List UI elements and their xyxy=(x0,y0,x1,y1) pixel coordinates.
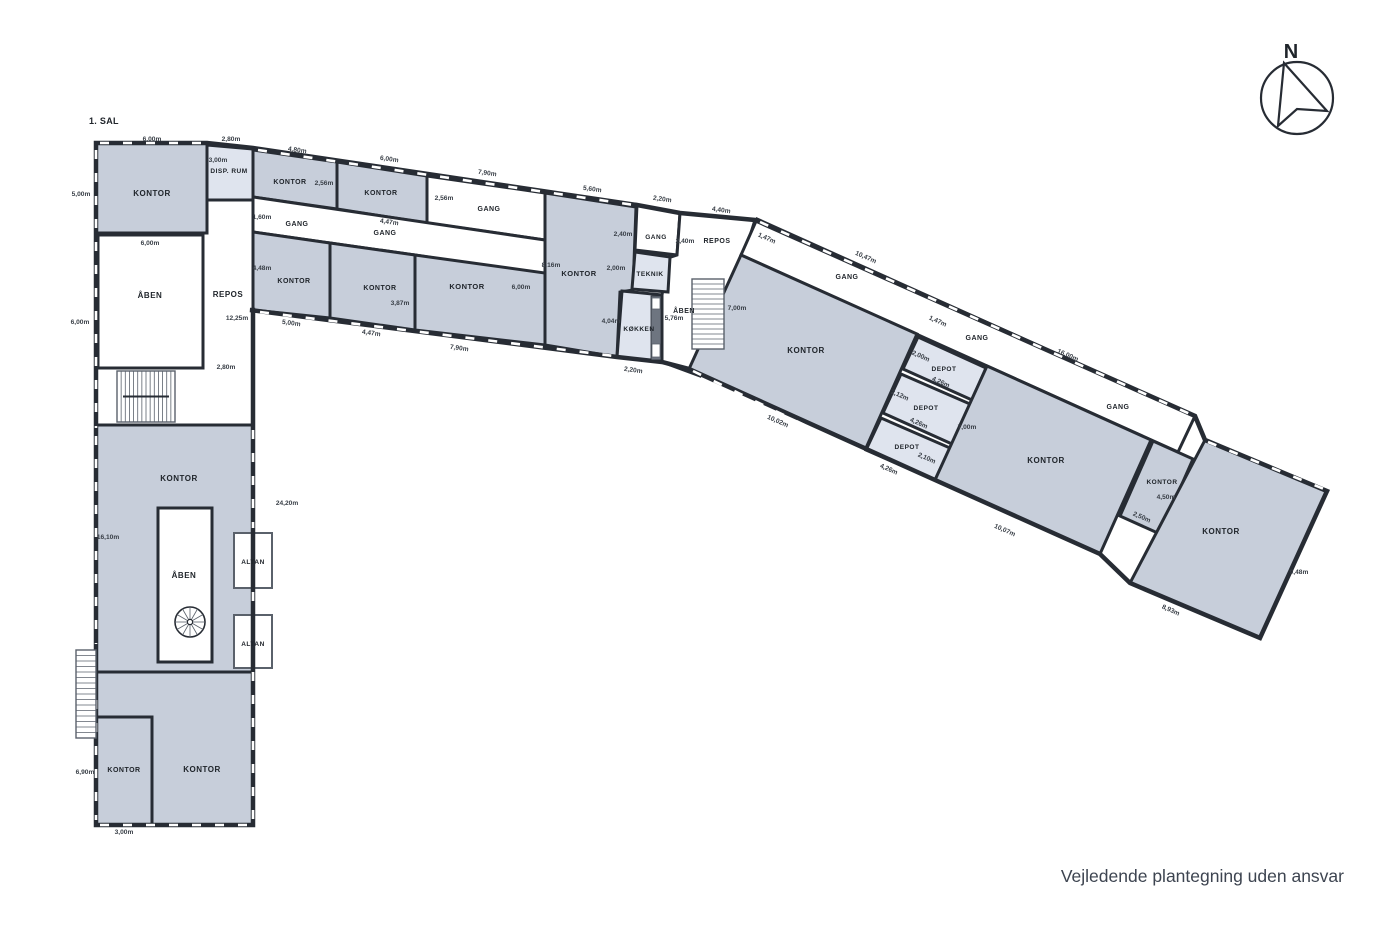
room-label: ALTAN xyxy=(241,559,265,566)
room-label: KONTOR xyxy=(561,269,596,278)
room-label: KONTOR xyxy=(1146,479,1177,486)
dimension-label: 4,47m xyxy=(361,329,381,339)
dimension-label: 6,00m xyxy=(512,284,531,291)
compass-circle xyxy=(1261,62,1333,134)
room-label: DISP. RUM xyxy=(210,168,247,175)
dimension-label: 1,60m xyxy=(253,214,272,221)
dimension-label: 7,90m xyxy=(449,344,469,354)
floor-plan: KONTORDISP. RUMÅBENREPOSKONTORÅBENALTANA… xyxy=(0,0,1400,933)
compass-north-label: N xyxy=(1284,41,1298,63)
dimension-label: 16,10m xyxy=(97,534,120,541)
compass: N xyxy=(1261,41,1333,134)
dimension-label: 5,00m xyxy=(281,319,301,329)
dimension-label: 4,04m xyxy=(602,318,621,325)
dimension-label: 24,20m xyxy=(276,500,299,507)
dimension-label: 12,25m xyxy=(226,315,249,322)
room-label: REPOS xyxy=(213,290,244,299)
stair-west xyxy=(117,371,175,422)
dimension-label: 3,00m xyxy=(209,157,228,164)
dimension-label: 2,40m xyxy=(614,231,633,238)
dimension-label: 7,00m xyxy=(728,305,747,312)
room-label: DEPOT xyxy=(914,405,939,412)
dimension-label: 4,40m xyxy=(711,206,731,216)
dimension-label: 2,40m xyxy=(676,238,695,245)
room-label: GANG xyxy=(478,206,501,213)
room-label: KØKKEN xyxy=(623,326,654,333)
room-label: KONTOR xyxy=(277,278,310,285)
dimension-label: 8,93m xyxy=(1161,604,1181,618)
dimension-label: 3,00m xyxy=(115,829,134,836)
dimension-label: 4,26m xyxy=(879,463,899,477)
dimension-label: 10,07m xyxy=(993,523,1016,539)
dimension-label: 5,76m xyxy=(665,315,684,322)
dimension-label: 2,20m xyxy=(652,195,672,205)
appliance-icon xyxy=(652,344,660,357)
room-label: DEPOT xyxy=(895,444,920,451)
dimension-label: 5,60m xyxy=(582,185,602,195)
room-label: ÅBEN xyxy=(673,306,695,315)
dimension-label: 7,90m xyxy=(477,169,497,179)
dimension-label: 5,00m xyxy=(72,191,91,198)
room-label: GANG xyxy=(966,335,989,342)
dimension-label: 3,87m xyxy=(391,300,410,307)
dimension-label: 2,80m xyxy=(222,136,241,143)
dimension-label: 4,50m xyxy=(1157,494,1176,501)
room-label: KONTOR xyxy=(183,765,221,774)
room-label: KONTOR xyxy=(1202,527,1240,536)
room-label: ÅBEN xyxy=(172,571,197,580)
stair-mid xyxy=(692,279,724,349)
dimension-label: 6,00m xyxy=(71,319,90,326)
spiral-staircase xyxy=(175,607,205,637)
dimension-label: 6,00m xyxy=(141,240,160,247)
dimension-label: 9,48m xyxy=(1290,569,1309,576)
dimension-label: 7,00m xyxy=(958,424,977,431)
room-aaben-nw xyxy=(98,235,203,368)
room-label: KONTOR xyxy=(160,474,198,483)
room-label: DEPOT xyxy=(932,366,957,373)
dimension-label: 6,00m xyxy=(143,136,162,143)
room-label: KONTOR xyxy=(787,346,825,355)
room-label: GANG xyxy=(836,274,859,281)
room-label: KONTOR xyxy=(449,282,484,291)
floor-level-label: 1. SAL xyxy=(89,116,119,126)
room-label: GANG xyxy=(645,234,667,241)
dimension-label: 2,80m xyxy=(217,364,236,371)
room-label: ÅBEN xyxy=(138,291,163,300)
dimension-label: 4,48m xyxy=(253,265,272,272)
dimension-label: 2,56m xyxy=(315,180,334,187)
room-kontor-nw xyxy=(96,143,207,233)
dimension-label: 6,00m xyxy=(379,155,399,165)
north-arrow-icon xyxy=(1278,63,1327,126)
room-label: KONTOR xyxy=(107,767,140,774)
dimension-label: 2,20m xyxy=(623,366,643,376)
dimension-label: 2,56m xyxy=(435,195,454,202)
room-label: REPOS xyxy=(703,238,730,245)
stair-exterior xyxy=(76,650,96,738)
dimension-label: 2,00m xyxy=(607,265,626,272)
room-label: KONTOR xyxy=(363,285,396,292)
dimension-label: 8,16m xyxy=(542,262,561,269)
room-label: GANG xyxy=(374,230,397,237)
room-label: TEKNIK xyxy=(636,271,663,278)
room-kontor-t3 xyxy=(253,232,330,318)
disclaimer-text: Vejledende plantegning uden ansvar xyxy=(1061,866,1344,887)
room-label: KONTOR xyxy=(364,190,397,197)
room-aaben-void xyxy=(158,508,212,662)
room-label: KONTOR xyxy=(273,179,306,186)
room-label: KONTOR xyxy=(1027,456,1065,465)
room-label: GANG xyxy=(1107,404,1130,411)
room-label: GANG xyxy=(286,221,309,228)
dimension-label: 10,02m xyxy=(766,414,789,430)
appliance-icon xyxy=(652,298,660,309)
room-label: KONTOR xyxy=(133,189,171,198)
room-label: ALTAN xyxy=(241,641,265,648)
dimension-label: 6,90m xyxy=(76,769,95,776)
